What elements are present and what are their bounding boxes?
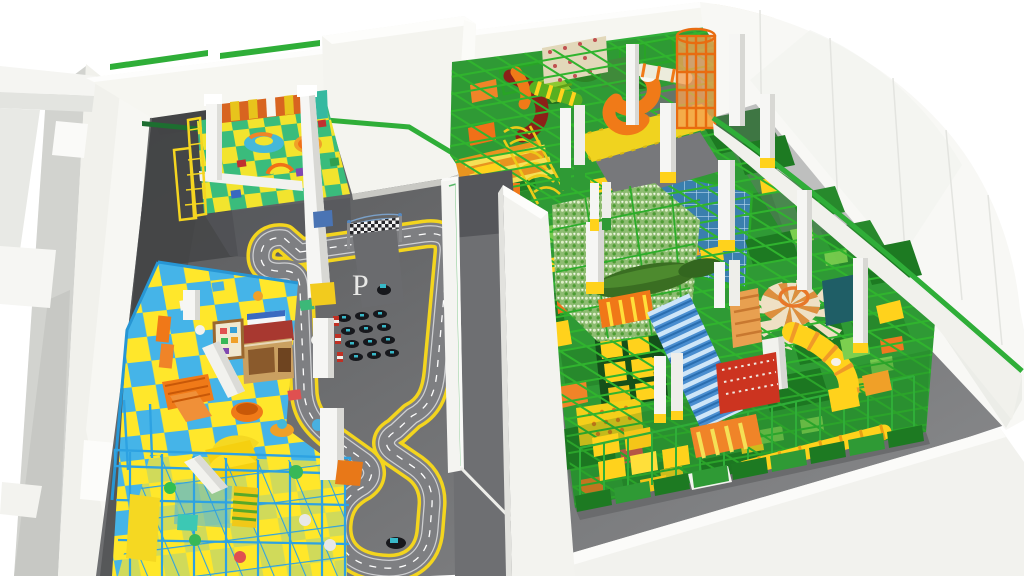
svg-text:P: P [352, 269, 369, 302]
